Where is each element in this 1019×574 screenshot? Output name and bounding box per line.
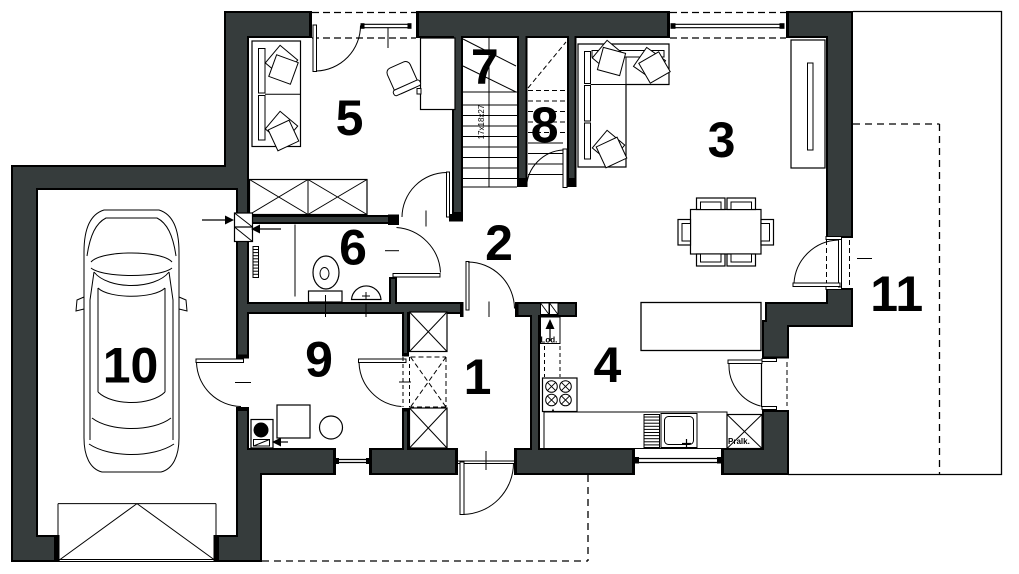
svg-text:Lod.: Lod.: [541, 336, 558, 345]
svg-text:10: 10: [103, 338, 159, 394]
svg-text:7: 7: [471, 39, 499, 95]
svg-text:5: 5: [336, 90, 364, 146]
svg-text:17x18x27: 17x18x27: [477, 104, 486, 139]
svg-text:3: 3: [708, 112, 736, 168]
svg-text:6: 6: [339, 220, 367, 276]
svg-text:8: 8: [531, 97, 559, 153]
svg-text:1: 1: [464, 349, 492, 405]
svg-text:Pralk.: Pralk.: [728, 437, 750, 446]
svg-text:2: 2: [485, 215, 513, 271]
svg-text:11: 11: [870, 266, 923, 322]
svg-text:9: 9: [305, 332, 333, 388]
svg-text:4: 4: [593, 337, 621, 393]
